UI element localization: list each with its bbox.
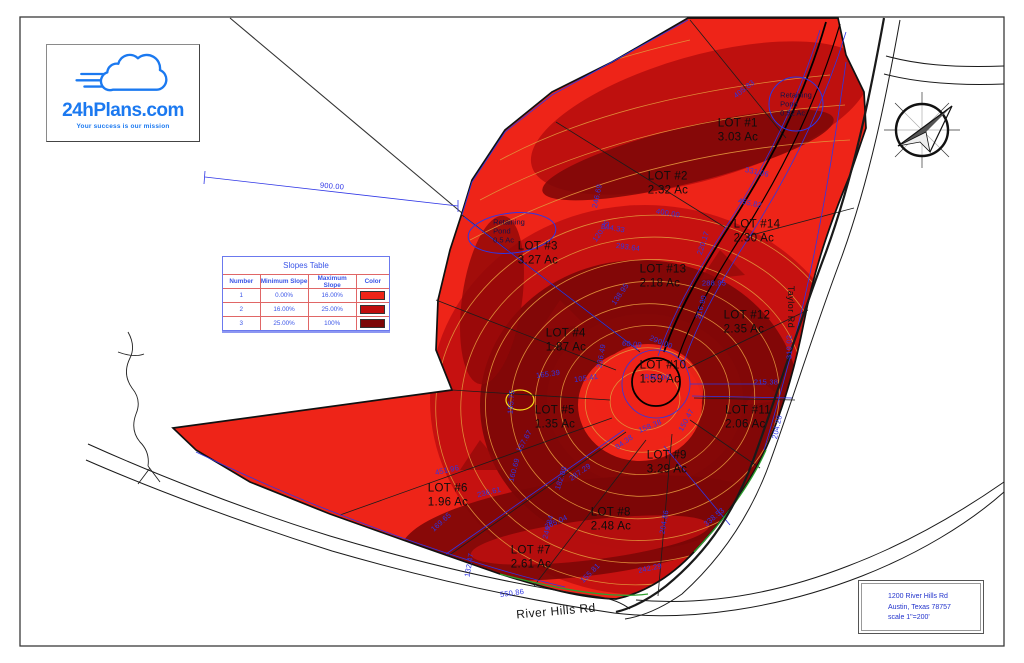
slopes-table: Slopes Table Number Minimum Slope Maximu… xyxy=(222,256,390,331)
slopes-col-max: Maximum Slope xyxy=(308,275,356,288)
slopes-row-3-cell-2: 100% xyxy=(308,316,356,330)
slopes-row-1-swatch-cell xyxy=(356,288,389,302)
title-block-city: Austin, Texas 78757 xyxy=(888,603,976,614)
slopes-row-3-swatch-cell xyxy=(356,316,389,330)
slope-color-swatch xyxy=(360,291,385,300)
slopes-table-title: Slopes Table xyxy=(223,257,389,275)
slopes-col-min: Minimum Slope xyxy=(260,275,308,288)
slopes-row-2-swatch-cell xyxy=(356,302,389,316)
slope-color-swatch xyxy=(360,319,385,328)
slopes-row-2-cell-1: 16.00% xyxy=(260,302,308,316)
slopes-row-2-cell-0: 2 xyxy=(223,302,260,316)
title-block-scale: scale 1"=200' xyxy=(888,613,976,624)
cloud-logo-icon xyxy=(64,45,182,103)
slopes-row-1-cell-0: 1 xyxy=(223,288,260,302)
slopes-row-1-cell-1: 0.00% xyxy=(260,288,308,302)
creek-lines xyxy=(118,332,160,484)
slopes-row-3-cell-0: 3 xyxy=(223,316,260,330)
slopes-row-3-cell-1: 25.00% xyxy=(260,316,308,330)
title-block-address: 1200 River Hills Rd xyxy=(888,592,976,603)
slopes-row-2-cell-2: 25.00% xyxy=(308,302,356,316)
slopes-row-1-cell-2: 16.00% xyxy=(308,288,356,302)
north-arrow-icon xyxy=(884,92,960,168)
logo-name: 24hPlans.com xyxy=(62,101,184,120)
site-plan-page: 24hPlans.com Your success is our mission… xyxy=(0,0,1024,663)
slope-color-swatch xyxy=(360,305,385,314)
logo-box: 24hPlans.com Your success is our mission xyxy=(46,44,200,142)
slopes-col-color: Color xyxy=(356,275,389,288)
logo-tagline: Your success is our mission xyxy=(76,123,169,130)
slopes-table-grid: Number Minimum Slope Maximum Slope Color… xyxy=(223,275,389,330)
title-block: 1200 River Hills Rd Austin, Texas 78757 … xyxy=(858,580,984,634)
slopes-col-number: Number xyxy=(223,275,260,288)
